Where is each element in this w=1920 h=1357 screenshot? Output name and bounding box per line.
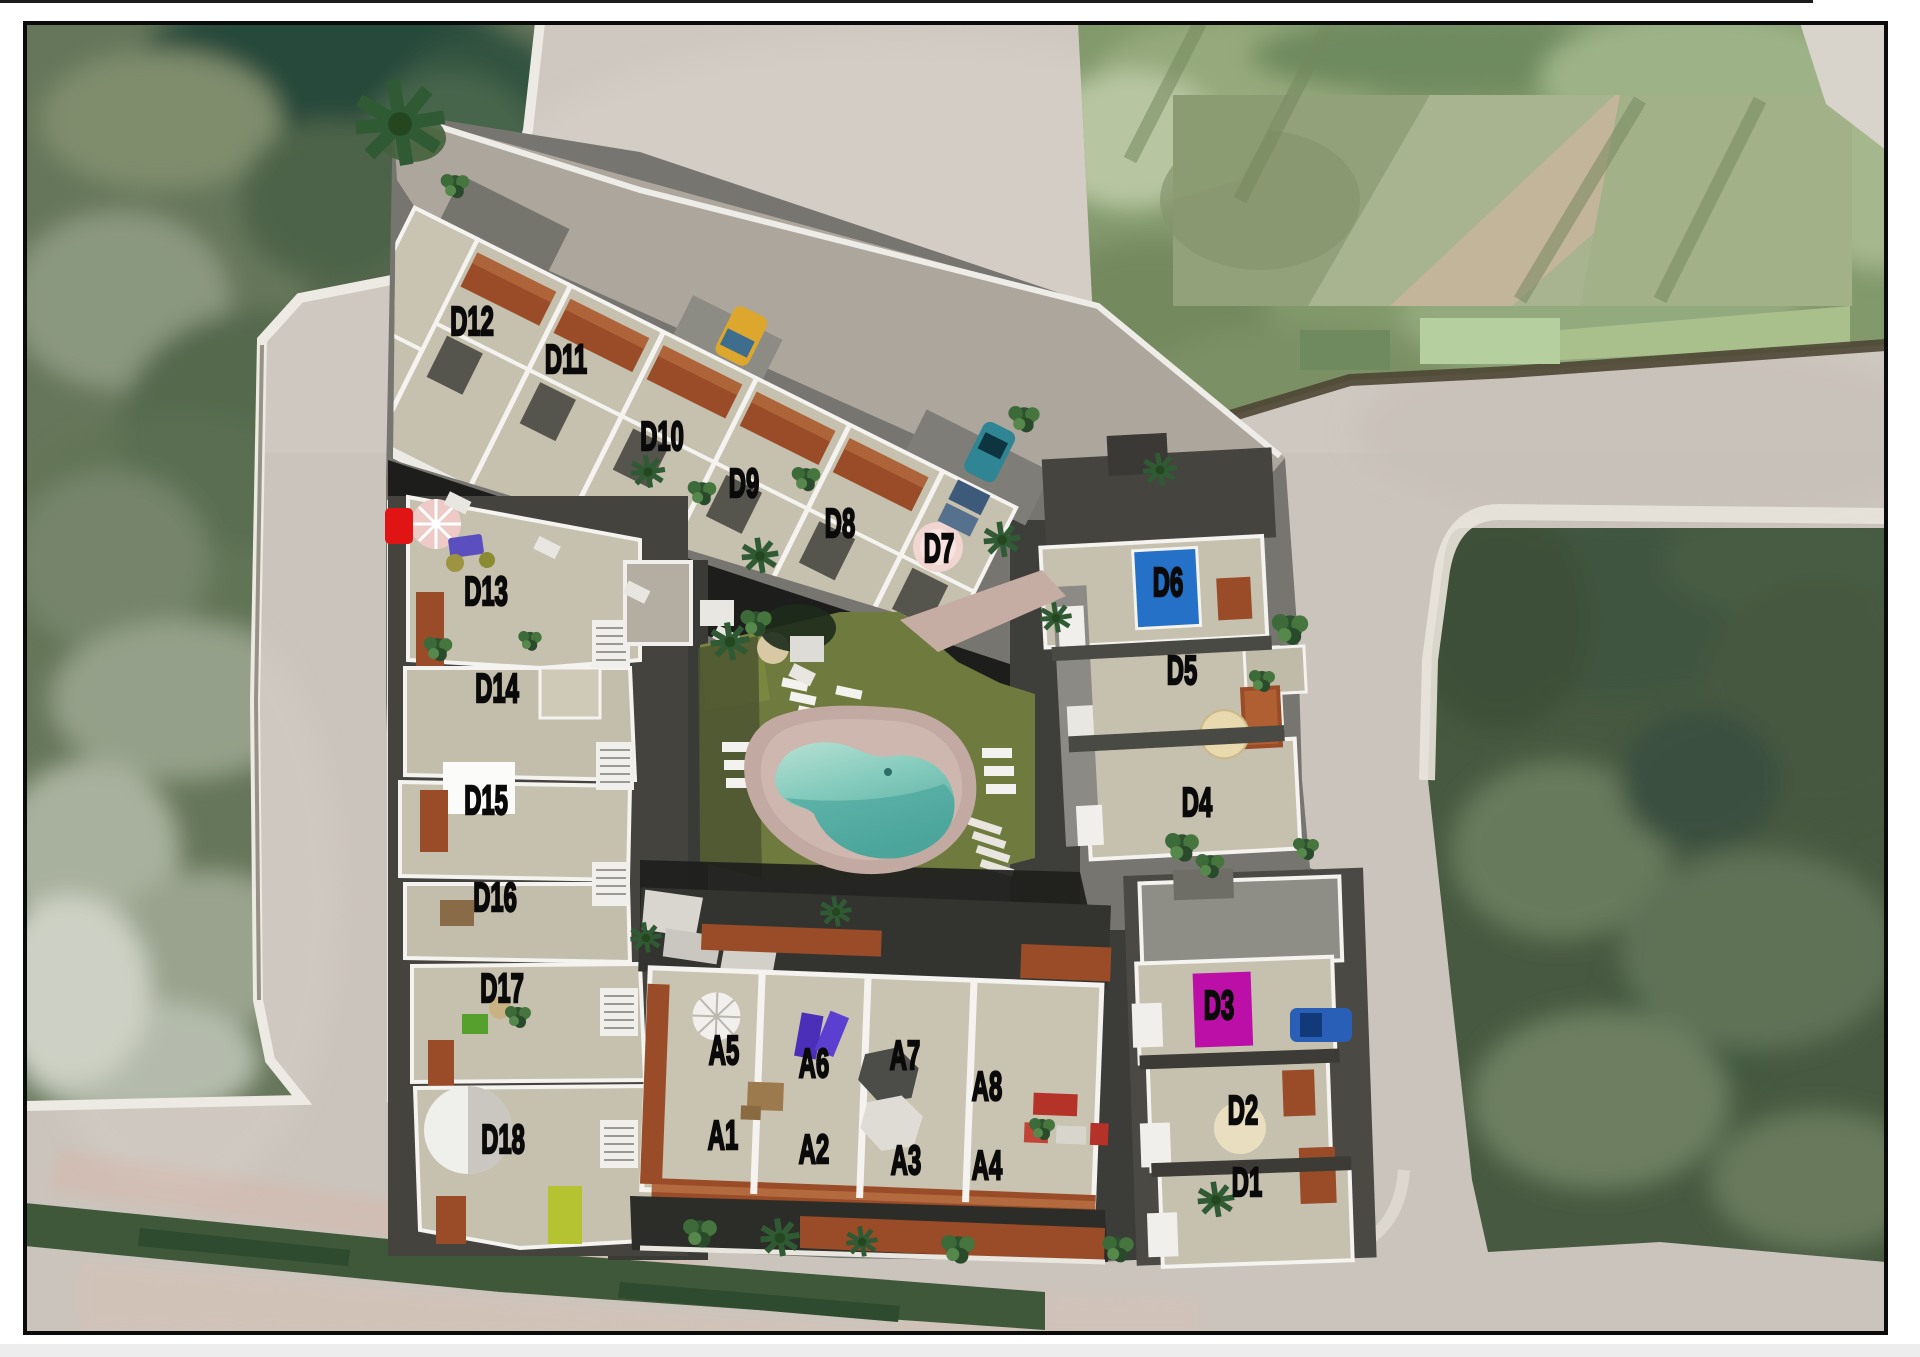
svg-text:A4: A4 <box>972 1144 1003 1189</box>
svg-text:A8: A8 <box>972 1065 1002 1110</box>
svg-text:D12: D12 <box>450 300 494 345</box>
svg-text:A5: A5 <box>709 1029 739 1074</box>
svg-text:D9: D9 <box>729 462 759 507</box>
svg-text:D8: D8 <box>825 502 855 547</box>
svg-text:D7: D7 <box>924 527 954 572</box>
svg-text:D17: D17 <box>480 967 524 1012</box>
svg-text:D4: D4 <box>1182 781 1213 826</box>
svg-text:D14: D14 <box>475 667 519 712</box>
svg-text:D11: D11 <box>545 338 587 383</box>
svg-text:D6: D6 <box>1153 561 1183 606</box>
svg-text:D16: D16 <box>473 876 517 921</box>
svg-text:A6: A6 <box>799 1042 829 1087</box>
svg-text:D5: D5 <box>1167 649 1197 694</box>
svg-text:A3: A3 <box>891 1139 921 1184</box>
svg-text:A7: A7 <box>890 1034 920 1079</box>
svg-text:D1: D1 <box>1232 1161 1262 1206</box>
svg-text:D18: D18 <box>481 1118 525 1163</box>
svg-text:A1: A1 <box>708 1114 738 1159</box>
svg-text:D13: D13 <box>464 570 508 615</box>
svg-text:D15: D15 <box>464 779 508 824</box>
svg-text:D10: D10 <box>640 415 684 460</box>
svg-text:D3: D3 <box>1204 984 1234 1029</box>
svg-text:D2: D2 <box>1228 1089 1258 1134</box>
svg-text:A2: A2 <box>799 1128 829 1173</box>
